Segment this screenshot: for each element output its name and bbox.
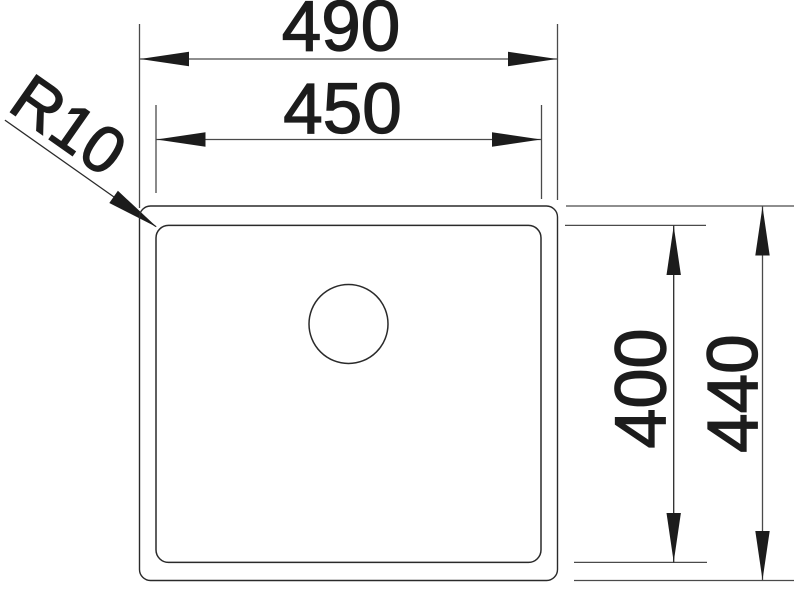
svg-text:400: 400 bbox=[602, 328, 682, 448]
svg-text:490: 490 bbox=[282, 0, 400, 67]
svg-text:R10: R10 bbox=[0, 60, 140, 190]
svg-text:440: 440 bbox=[694, 334, 773, 452]
svg-text:450: 450 bbox=[283, 70, 401, 149]
